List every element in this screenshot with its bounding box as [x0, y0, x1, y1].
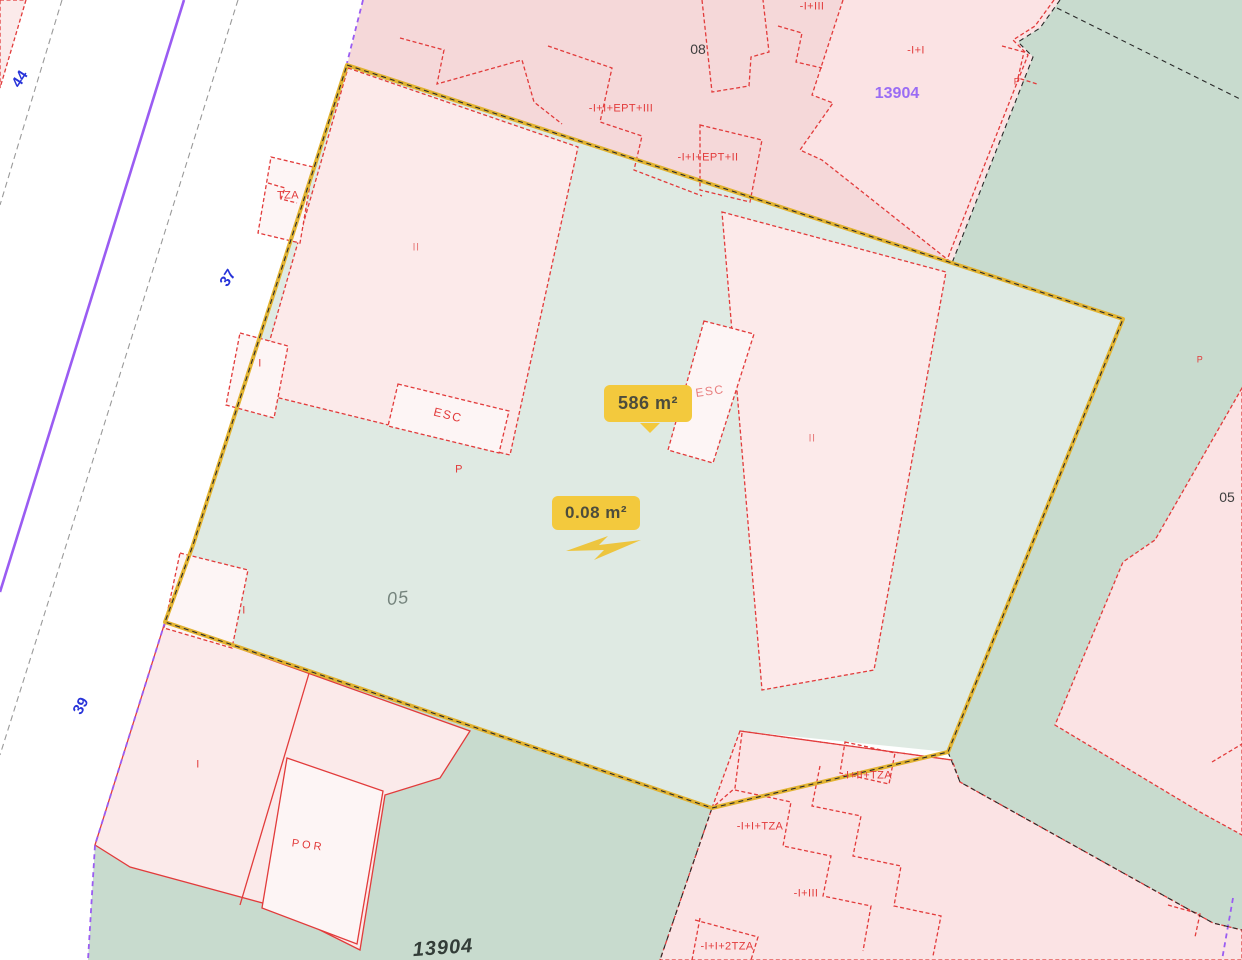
building-label-i1tza: -I+I+TZA: [737, 822, 784, 833]
building-label-ept3: -I+I+EPT+III: [589, 104, 653, 115]
building-label-p-right: P: [1197, 356, 1203, 365]
building-label-i1-top: -I+I: [907, 46, 925, 57]
building-label-p-left: P: [455, 465, 463, 476]
building-label-i2tza: -I+II+TZA: [842, 771, 892, 782]
building-label-i3-bottom: -I+III: [794, 889, 819, 900]
building-label-ii-left: II: [412, 243, 419, 254]
building-label-i3-top: -I+III: [800, 2, 825, 13]
building-label-ept2: -I+I+EPT+II: [678, 153, 739, 164]
parcel-ref-13904-top: 13904: [875, 86, 920, 102]
building-label-i12tza: -I+I+2TZA: [700, 942, 753, 953]
area-tooltip-small: 0.08 m²: [552, 496, 640, 530]
parcel-ref-05-selected: 05: [386, 588, 410, 608]
building-label-i-mid: I: [242, 606, 245, 617]
building-label-p-topright: P: [1014, 78, 1020, 87]
building-label-i-left: I: [258, 359, 261, 370]
parcel-ref-08: 08: [690, 42, 706, 56]
area-tooltip-main-pointer: [640, 423, 660, 433]
parcel-ref-05-right: 05: [1219, 490, 1235, 504]
building-label-tza: TZA: [277, 191, 299, 202]
cadastral-map-viewport[interactable]: 44 37 39 08 13904 05 05 13904 -I+III -I+…: [0, 0, 1242, 960]
area-tooltip-main: 586 m²: [604, 385, 692, 422]
building-label-ii-right: II: [808, 434, 815, 445]
parcel-ref-13904-bottom: 13904: [412, 936, 474, 960]
map-canvas[interactable]: [0, 0, 1242, 960]
building-label-i-bottom: I: [196, 760, 199, 771]
